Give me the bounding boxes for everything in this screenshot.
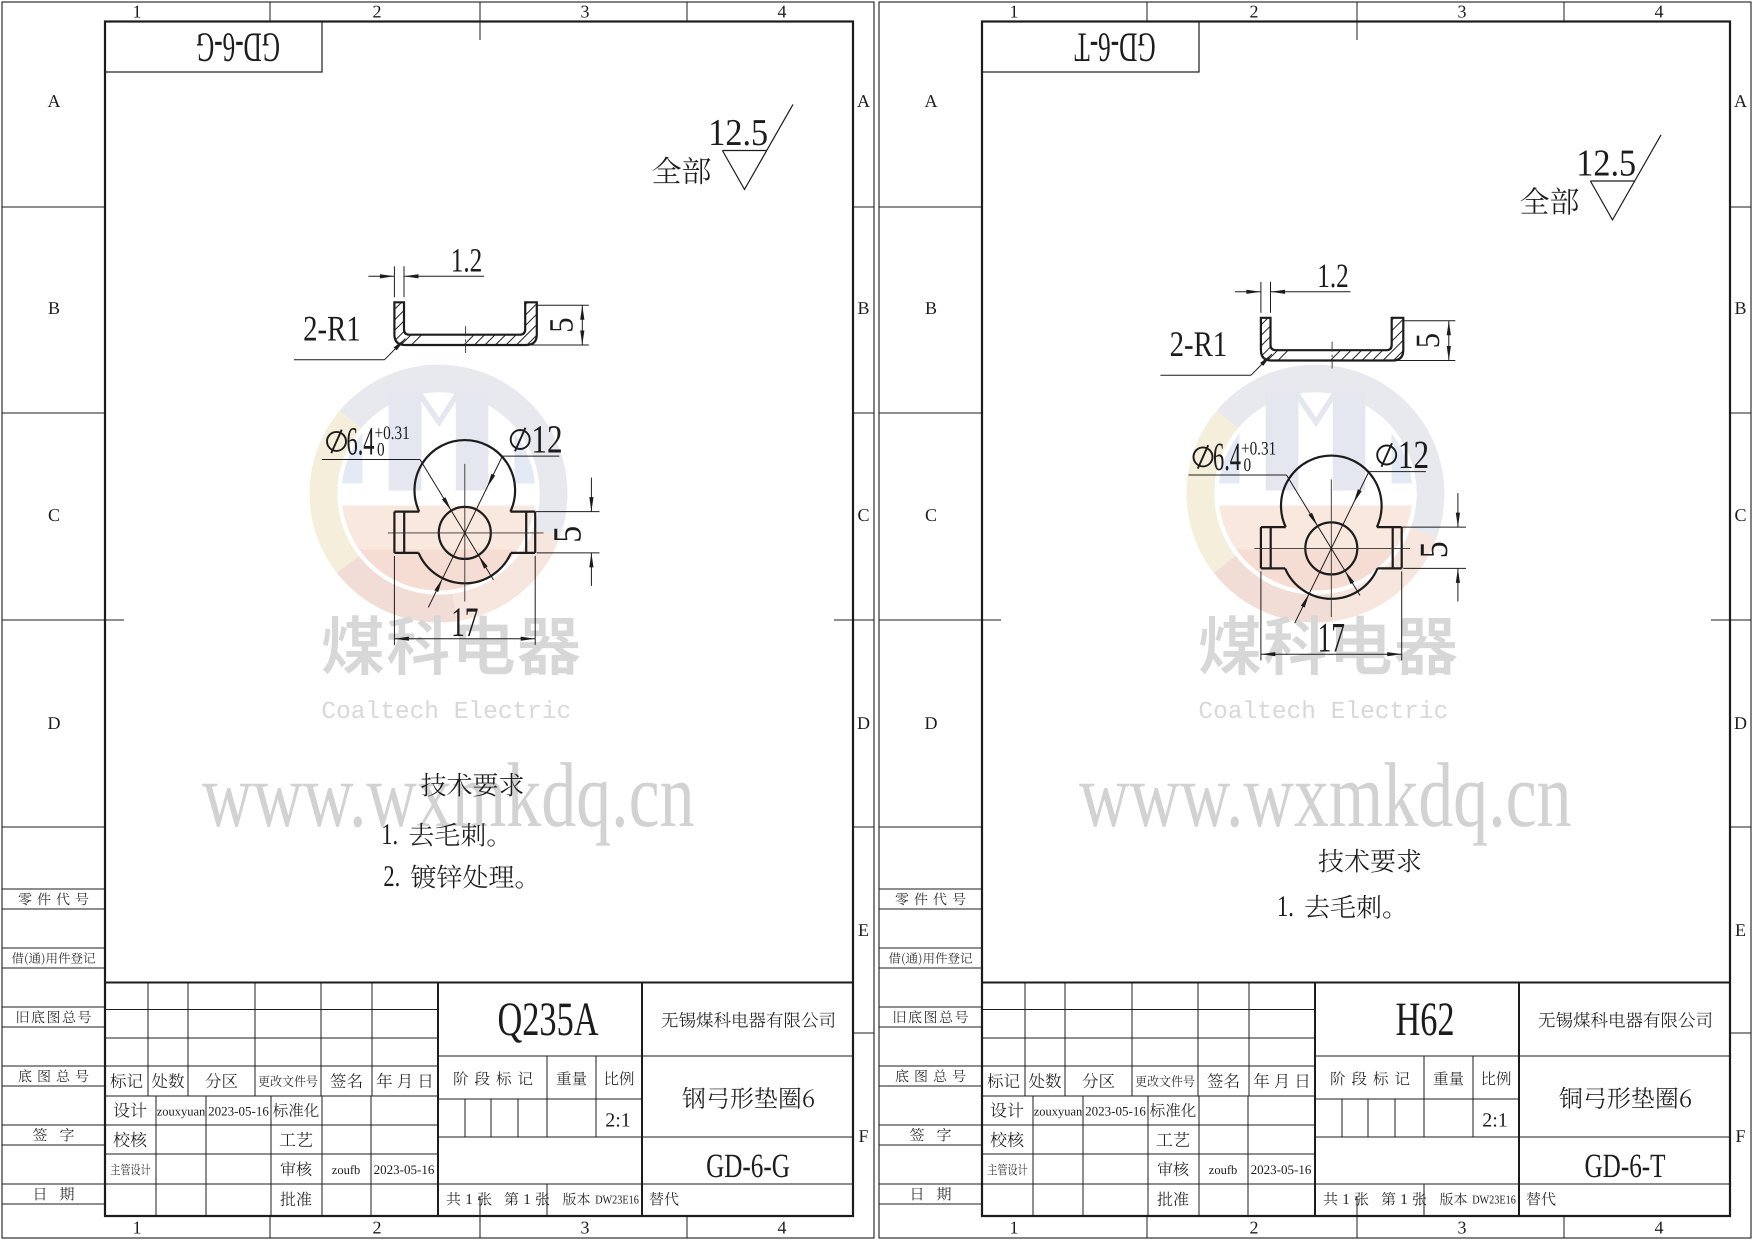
svg-text:D: D <box>48 713 61 733</box>
svg-text:C: C <box>857 505 869 525</box>
svg-text:A: A <box>1734 91 1747 111</box>
svg-text:2: 2 <box>373 2 382 22</box>
svg-text:1: 1 <box>1010 2 1019 22</box>
svg-text:F: F <box>1735 1126 1745 1146</box>
svg-text:D: D <box>1734 713 1747 733</box>
svg-text:1: 1 <box>1010 1218 1019 1238</box>
svg-text:0: 0 <box>1244 455 1252 476</box>
svg-text:2:1: 2:1 <box>1482 1110 1508 1132</box>
svg-text:1.2: 1.2 <box>451 242 482 279</box>
svg-text:F: F <box>858 1126 868 1146</box>
svg-text:www.wxmkdq.cn: www.wxmkdq.cn <box>202 744 695 846</box>
svg-text:Coaltech Electric: Coaltech Electric <box>321 699 571 726</box>
svg-text:1: 1 <box>465 1192 473 1208</box>
svg-text:A: A <box>857 91 870 111</box>
svg-text:GD-6-G: GD-6-G <box>706 1148 790 1185</box>
svg-text:6.4: 6.4 <box>1213 434 1241 479</box>
svg-text:2023-05-16: 2023-05-16 <box>1085 1104 1146 1119</box>
svg-text:Q235A: Q235A <box>497 993 598 1046</box>
svg-text:zouxyuan: zouxyuan <box>1034 1105 1083 1119</box>
svg-text:2023-05-16: 2023-05-16 <box>208 1104 269 1119</box>
svg-text:1.: 1. <box>1277 890 1294 923</box>
svg-text:3: 3 <box>581 1218 590 1238</box>
svg-text:5: 5 <box>1410 333 1447 348</box>
svg-text:C: C <box>1734 505 1746 525</box>
svg-text:12: 12 <box>1398 432 1429 477</box>
svg-text:1: 1 <box>1342 1192 1350 1208</box>
svg-text:B: B <box>1734 298 1746 318</box>
svg-text:zouxyuan: zouxyuan <box>157 1105 206 1119</box>
svg-text:zoufb: zoufb <box>1209 1163 1237 1177</box>
svg-text:5: 5 <box>1411 541 1456 558</box>
svg-text:12.5: 12.5 <box>708 112 768 154</box>
svg-text:4: 4 <box>1655 2 1664 22</box>
svg-text:B: B <box>48 298 60 318</box>
svg-text:1: 1 <box>133 2 142 22</box>
svg-text:1: 1 <box>523 1192 531 1208</box>
svg-text:A: A <box>925 91 938 111</box>
svg-text:DW23E16: DW23E16 <box>595 1193 639 1207</box>
svg-text:DW23E16: DW23E16 <box>1472 1193 1516 1207</box>
svg-text:12.5: 12.5 <box>1576 143 1636 185</box>
svg-text:B: B <box>925 298 937 318</box>
svg-text:2023-05-16: 2023-05-16 <box>1251 1162 1312 1177</box>
svg-text:3: 3 <box>581 2 590 22</box>
svg-text:GD-6-T: GD-6-T <box>1584 1148 1665 1185</box>
svg-text:B: B <box>857 298 869 318</box>
svg-text:zoufb: zoufb <box>332 1163 360 1177</box>
svg-text:E: E <box>858 920 869 940</box>
svg-text:GD-6-T: GD-6-T <box>1074 24 1155 70</box>
svg-text:E: E <box>1735 920 1746 940</box>
svg-text:2: 2 <box>1250 1218 1259 1238</box>
svg-text:H62: H62 <box>1395 993 1454 1046</box>
svg-text:3: 3 <box>1458 1218 1467 1238</box>
svg-text:2: 2 <box>1250 2 1259 22</box>
svg-text:www.wxmkdq.cn: www.wxmkdq.cn <box>1079 744 1572 846</box>
svg-text:17: 17 <box>1318 616 1345 662</box>
svg-text:C: C <box>48 505 60 525</box>
svg-text:2:1: 2:1 <box>605 1110 631 1132</box>
svg-text:2023-05-16: 2023-05-16 <box>374 1162 435 1177</box>
svg-text:A: A <box>48 91 61 111</box>
svg-text:2: 2 <box>373 1218 382 1238</box>
svg-text:2.: 2. <box>383 860 400 893</box>
svg-text:1.: 1. <box>381 818 398 851</box>
svg-text:17: 17 <box>451 600 478 646</box>
svg-text:12: 12 <box>531 417 562 462</box>
svg-text:D: D <box>857 713 870 733</box>
svg-text:C: C <box>925 505 937 525</box>
svg-text:4: 4 <box>1655 1218 1664 1238</box>
svg-text:4: 4 <box>778 2 787 22</box>
svg-text:5: 5 <box>544 526 589 543</box>
svg-text:Coaltech Electric: Coaltech Electric <box>1198 699 1448 726</box>
svg-text:6.4: 6.4 <box>347 419 375 464</box>
svg-text:0: 0 <box>377 440 385 461</box>
svg-text:1: 1 <box>1400 1192 1408 1208</box>
svg-text:D: D <box>925 713 938 733</box>
svg-text:GD-6-G: GD-6-G <box>196 24 280 70</box>
svg-text:2-R1: 2-R1 <box>303 308 361 348</box>
svg-text:4: 4 <box>778 1218 787 1238</box>
svg-text:5: 5 <box>543 318 580 333</box>
svg-text:1.2: 1.2 <box>1317 258 1348 295</box>
svg-text:2-R1: 2-R1 <box>1170 324 1228 364</box>
svg-text:3: 3 <box>1458 2 1467 22</box>
svg-text:1: 1 <box>133 1218 142 1238</box>
